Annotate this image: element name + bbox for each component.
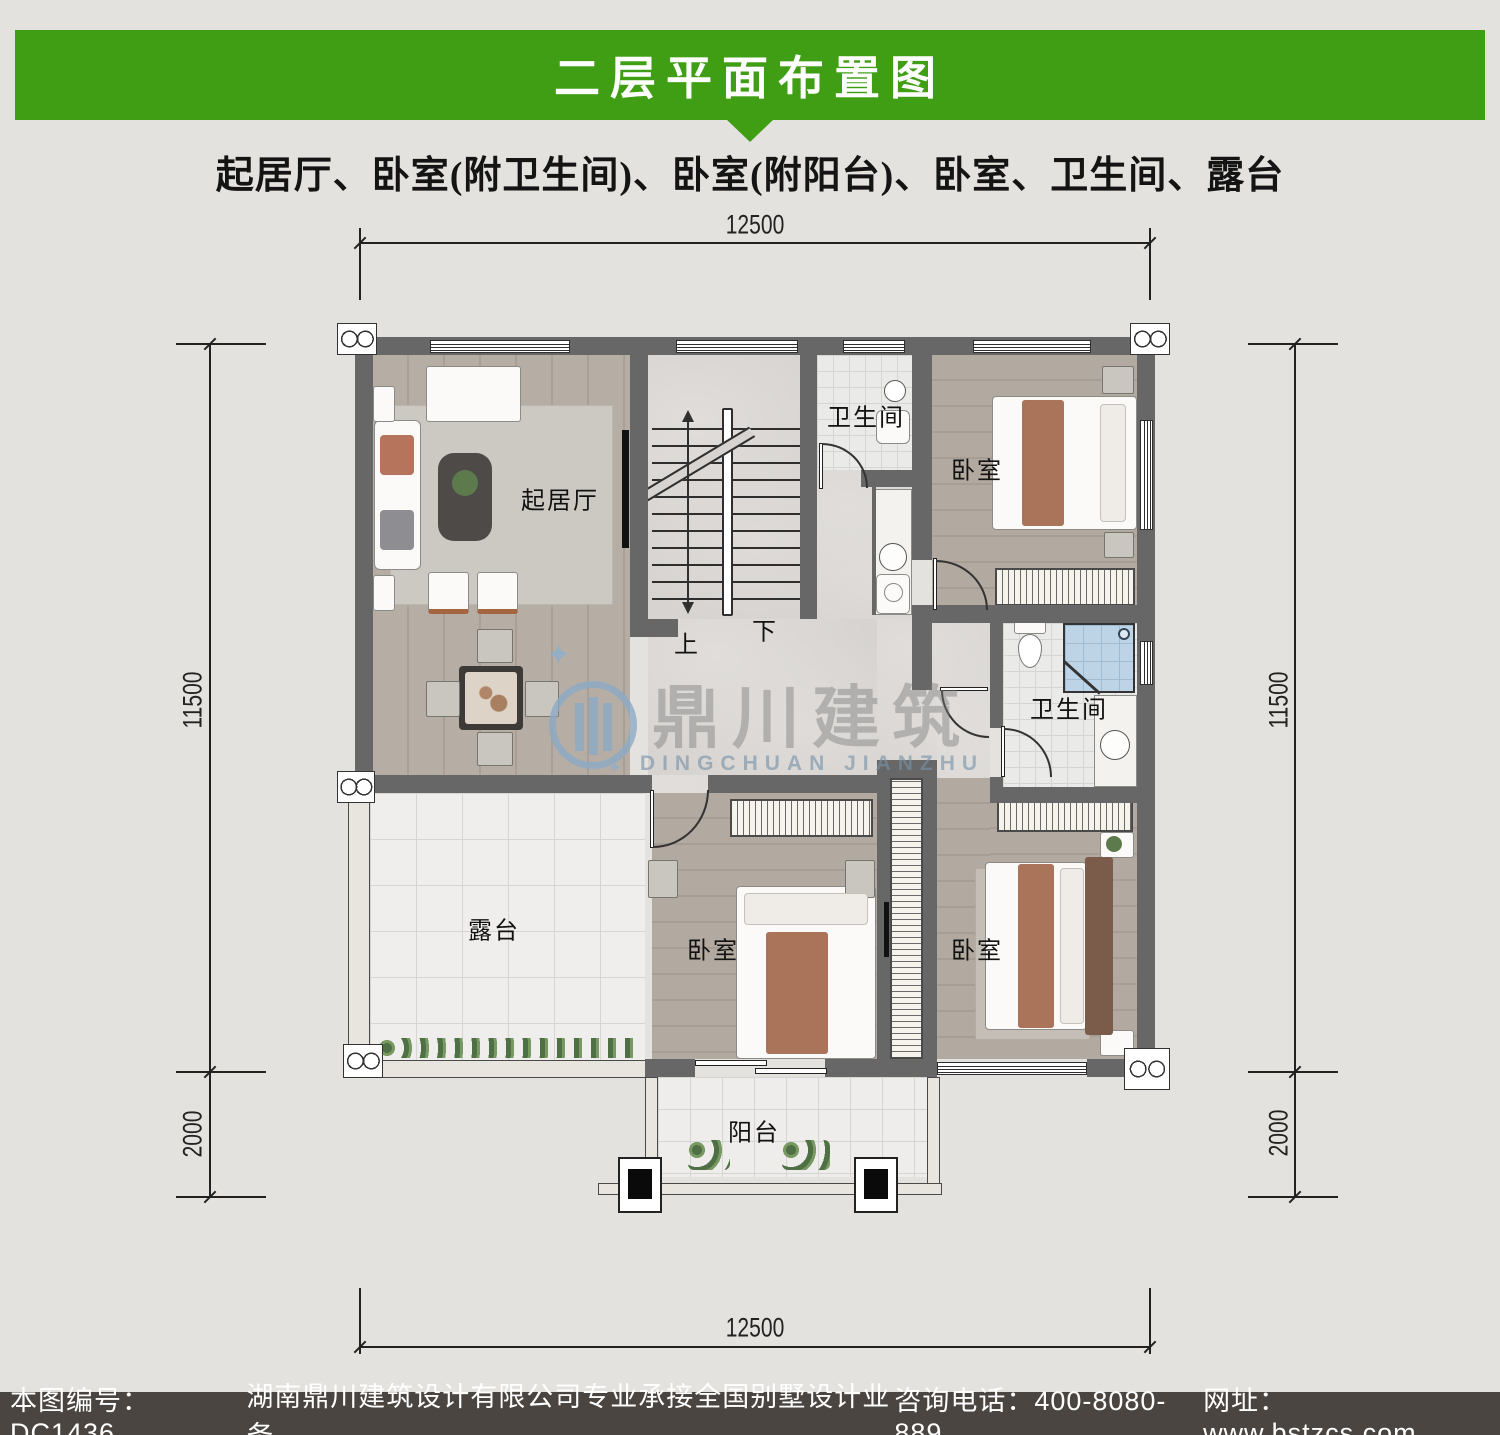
watermark-sparkle-icon: ✦ [608,758,621,778]
terrace-parapet-left [348,793,370,1076]
window [937,1062,1087,1075]
stair-arrow-up [682,410,694,422]
nightstand [1104,532,1134,558]
wardrobe [995,568,1135,606]
wall-niche [373,386,395,422]
shower-head-icon [1118,628,1130,640]
corner-ornament [1130,323,1170,355]
dining-table-top [465,672,517,724]
footer-phone: 咨询电话：400-8080-889 [894,1379,1203,1435]
floor-plan: 上 下 [0,0,1500,1435]
tv-icon [622,430,629,548]
corridor-closet [890,778,923,1059]
balcony-column-core [864,1169,888,1199]
terrace-parapet-bottom [348,1060,648,1078]
wall-bedroom-tr-left-upper [912,355,932,560]
room-label-living: 起居厅 [521,481,599,516]
dim-text-left-ext: 2000 [178,1111,209,1158]
dim-text-right-main: 11500 [1264,671,1295,728]
wardrobe [730,799,873,837]
footer-company: 湖南鼎川建筑设计有限公司专业承接全国别墅设计业务 [246,1375,894,1435]
bed-pillows [1100,404,1126,522]
washing-machine-drum [884,583,903,602]
nightstand-plant [1106,836,1122,852]
wall-closet-cap [877,760,937,778]
wall-bath-mid-bottom [990,787,1137,803]
room-label-bedroom-tr: 卧室 [951,451,1003,486]
dim-line-top [360,242,1150,244]
dining-chair [426,681,460,717]
dim-ext [1149,228,1151,300]
wall-bath-top-bottom [861,470,912,487]
terrace-plants [378,1038,640,1058]
stair-arrow-down [682,602,694,614]
dining-chair [525,681,559,717]
dim-text-top: 12500 [726,210,785,241]
balcony-parapet-right [927,1077,940,1189]
sliding-door [755,1068,827,1074]
footer-website: 网址：www.bstzcs.com [1203,1379,1490,1435]
corner-ornament [1124,1048,1170,1090]
bed-pillows [1060,868,1084,1024]
armchair [477,572,518,614]
nightstand [648,860,678,898]
wall-nook-partition [872,487,876,615]
page: 二层平面布置图 起居厅、卧室(附卫生间)、卧室(附阳台)、卧室、卫生间、露台 [0,0,1500,1435]
window [676,340,798,353]
bed-blanket [1022,400,1064,526]
stair-direction-line [687,420,689,608]
sink-icon [879,543,907,571]
room-label-bath-mid: 卫生间 [1030,690,1108,725]
balcony-plant [688,1140,730,1170]
wall-niche [373,575,395,611]
balcony-column-core [628,1169,652,1199]
corner-ornament [337,323,377,355]
wall-stair-left-stub [630,619,678,637]
wall-bedroom-tr-left-lower [912,612,932,690]
sink-icon [1100,730,1130,760]
bed-blanket [766,932,828,1054]
dim-text-right-ext: 2000 [1264,1110,1295,1157]
watermark-sparkle-icon: ✦ [546,638,571,673]
sideboard [426,366,521,422]
dim-text-bottom: 12500 [726,1313,785,1344]
bed-pillows [744,893,868,925]
room-label-terrace: 露台 [468,911,520,946]
dim-text-left-main: 11500 [178,671,209,728]
window [1140,641,1153,685]
corner-ornament [337,771,375,803]
dining-chair [477,732,513,766]
wall-bedroom-bm-top [708,775,877,793]
wall-bedroom-br-left [923,778,937,1059]
tv-icon [884,902,889,957]
stair-up-label: 上 [674,625,700,660]
room-label-bedroom-bm: 卧室 [687,931,739,966]
nightstand [1102,366,1134,394]
dim-ext [359,228,361,300]
dining-chair [477,629,513,663]
coffee-table [438,453,492,541]
window [430,340,570,353]
dim-ext [176,1196,266,1198]
armchair [428,572,469,614]
coffee-table-plant [452,470,478,496]
window [973,340,1091,353]
corner-ornament [343,1044,383,1078]
wall-stair-left [630,355,648,619]
dim-line-bottom [360,1346,1150,1348]
footer-bar: 本图编号：DC1436 湖南鼎川建筑设计有限公司专业承接全国别墅设计业务 咨询电… [0,1392,1500,1435]
wall-stair-right [800,355,817,619]
wall-bath-mid-left-upper [990,623,1003,728]
room-label-balcony: 阳台 [728,1113,780,1148]
bed-blanket [1018,864,1054,1028]
window [1140,420,1153,530]
room-label-bedroom-br: 卧室 [951,931,1003,966]
dim-ext [176,1071,266,1073]
wall-left [355,355,373,793]
wall-bottom [825,1059,937,1077]
wall-bottom [645,1059,695,1077]
dim-ext [176,343,266,345]
stair-down-label: 下 [752,612,778,647]
sliding-door [695,1060,767,1066]
balcony-plant [782,1140,830,1170]
footer-drawing-number: 本图编号：DC1436 [10,1379,246,1435]
room-label-bath-top: 卫生间 [827,398,905,433]
wall-bath-mid-top [990,605,1137,623]
bed-headboard [1085,857,1113,1035]
sofa-cushion [380,510,414,550]
sofa-cushion [380,435,414,475]
window [843,340,905,353]
